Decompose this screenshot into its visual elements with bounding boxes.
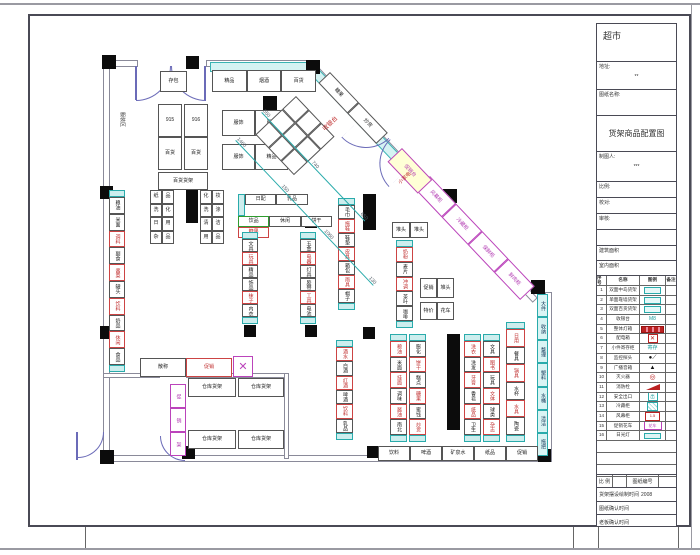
shelf-cell: 饰品 <box>242 278 258 291</box>
shelf-end-cap <box>242 232 258 239</box>
shelf-run: 精品烟酒百货 <box>212 70 316 92</box>
shelf-cell: 咖啡 <box>396 306 413 321</box>
scale-cell-label: 比 例 <box>597 475 613 487</box>
dimension-value: 740 <box>310 160 320 170</box>
legend-glyph <box>646 384 660 390</box>
column <box>102 55 116 69</box>
shelf-cell: 调味 <box>390 388 407 404</box>
shelf-cell: 915 <box>158 104 182 137</box>
shelf-cell: 糖果 <box>409 388 426 404</box>
boss-time-label: 老板确认时间 <box>599 519 629 526</box>
shelf-end-cap <box>336 340 353 347</box>
legend-glyph <box>644 287 661 294</box>
shelf-cell: 仓库货架 <box>188 430 236 449</box>
shelf-cell: 品 <box>162 190 174 204</box>
shelf-cell: 奶品 <box>109 315 125 332</box>
shelf-run: 膨化饼干糕点糖果蜜饯炒货 <box>409 334 426 442</box>
shelf-cell: 杂 <box>150 231 162 245</box>
shelf-cell: 酱菜 <box>109 264 125 281</box>
shelf-run: 文具玩具精品饰品袜子内衣 <box>242 232 258 324</box>
shelf-cell: 销 <box>170 408 186 432</box>
shelf-end-cap <box>338 303 355 310</box>
shelf-cell: 洁 <box>212 217 224 231</box>
wall <box>284 373 289 459</box>
shelf-cell: 涤 <box>212 204 224 218</box>
legend-glyph <box>641 326 664 333</box>
legend-glyph: 花车 <box>644 422 662 431</box>
shelf-cell: 杂志 <box>483 419 500 435</box>
shelf-cell: 大件 <box>537 294 548 317</box>
shelf-end-cap <box>109 190 125 197</box>
shelf-cell: 仓库货架 <box>238 430 284 449</box>
shelf-cell: 粮油 <box>390 341 407 357</box>
shelf-cell: 用 <box>200 231 212 245</box>
legend-row: 7小件寄存柜寄存 <box>597 344 676 354</box>
shelf-cell: 南北 <box>390 419 407 435</box>
legend-row: 9广播音箱▲ <box>597 364 676 374</box>
column <box>447 334 460 430</box>
shelf-cell: 洗 <box>200 204 212 218</box>
drafter-value: *** <box>599 164 674 170</box>
legend-empty-row <box>597 453 676 465</box>
shelf-cell: 烟酒 <box>247 70 282 92</box>
shelf-cell: 炒货 <box>409 419 426 435</box>
shelf-cell: 酒水 <box>336 347 353 361</box>
door-leaf <box>135 66 137 100</box>
shelf-run: 五金电器灯具胶带工具电池 <box>300 232 316 324</box>
column <box>186 56 199 69</box>
shelf-run: 散称促销 <box>140 358 232 377</box>
title-block: 超市 地址: ** 图纸名称: 货架商品配置图 制图人: *** 比例: 校对:… <box>596 23 677 527</box>
shelf-run: 促销架 <box>170 384 186 456</box>
shelf-cell: 胶带 <box>300 278 316 291</box>
shelf-run: 仓库货架 <box>188 378 236 397</box>
shelf-cell: 袜子 <box>242 291 258 304</box>
shelf-cell: 电器 <box>300 252 316 265</box>
shelf-cell: 香皂 <box>464 388 481 404</box>
shelf-end-cap <box>109 365 125 372</box>
drawing-name-label: 图纸名称: <box>597 90 676 116</box>
shelf-cell: 花车 <box>437 302 454 320</box>
shelf-run: 促销堆头 <box>420 278 454 298</box>
strip-divider <box>678 527 679 548</box>
shelf-cell: 糕点 <box>409 372 426 388</box>
shelf-cell: 帽子 <box>338 289 355 303</box>
address-label: 地址: <box>599 64 610 70</box>
shelf-end-cap <box>300 317 316 324</box>
blank-row <box>597 230 676 246</box>
shelf-end-cap <box>506 322 525 329</box>
shelf-run: 仓库货架 <box>238 378 284 397</box>
drawing-title: 货架商品配置图 <box>597 116 676 152</box>
shelf-cell: 水杯 <box>506 382 525 400</box>
shelf-cell: 矿泉水 <box>442 446 474 461</box>
area-label: 收银台 <box>322 116 339 133</box>
shelf-cell: 堆头 <box>392 222 410 238</box>
interior-area-label: 室内面积 <box>597 261 676 276</box>
shelf-end-cap <box>483 435 500 442</box>
shelf-cell: 拖鞋 <box>338 219 355 233</box>
shelf-run: 915百货 <box>158 104 182 170</box>
shelf-cell: 清 <box>200 217 212 231</box>
shelf-end-cap <box>390 435 407 442</box>
draw-time-label: 货架摆设绘制时间 <box>599 491 639 498</box>
shelf-cell: 卫生 <box>464 419 481 435</box>
shelf-cell: 洗 <box>150 204 162 218</box>
shelf-cell: 散称 <box>140 358 186 377</box>
shelf-cell: 牙膏 <box>464 372 481 388</box>
floor-plan-canvas: 精品烟酒百货存包915百货916百货百货货架服饰服饰服饰精品粮油米面调料副食酱菜… <box>0 0 596 555</box>
shelf-cell: 啤酒 <box>336 390 353 404</box>
review-label: 审核: <box>597 214 676 230</box>
legend-row: 4收银台M8 <box>597 315 676 325</box>
legend-glyph: M8 <box>649 317 656 322</box>
shelf-end-cap <box>300 232 316 239</box>
shelf-cell: 酱油 <box>390 404 407 420</box>
address-value: ** <box>599 74 674 80</box>
shelf-cell: 灯具 <box>300 265 316 278</box>
shelf-cell: 挂面 <box>390 372 407 388</box>
shelf-cell: 百货 <box>281 70 316 92</box>
check-label: 校对: <box>597 198 676 214</box>
shelf-cell: 纸 <box>150 190 162 204</box>
shelf-cell: 粮油 <box>109 197 125 214</box>
legend-row: 3双面百货货架 <box>597 305 676 315</box>
shelf-cell: 饮品 <box>238 216 269 227</box>
legend-row: 1双面中岛货架 <box>597 286 676 296</box>
shelf-cell: 仓库货架 <box>188 378 236 397</box>
shelf-cell: 存包 <box>160 71 187 92</box>
shelf-cell: 纸品 <box>474 446 506 461</box>
shelf-cell: 水具 <box>506 400 525 418</box>
shelf-cell: 水桶 <box>537 387 548 410</box>
legend-glyph: ●⟋ <box>649 355 657 361</box>
shelf-end-cap <box>242 317 258 324</box>
scale-cell-value <box>613 475 627 487</box>
shelf-run: 粮油米面调料副食酱菜罐头饮料奶品休闲食品 <box>109 190 125 372</box>
shelf-end-cap <box>464 435 481 442</box>
legend-row: 11消防栓 <box>597 383 676 393</box>
boss-time-row: 老板确认时间 <box>597 515 676 529</box>
legend-glyph <box>644 306 661 313</box>
shelf-end-cap <box>464 334 481 341</box>
column <box>244 325 256 337</box>
shelf-cell: 玩具 <box>483 372 500 388</box>
shelf-cell: 堆头 <box>410 222 428 238</box>
shelf-cell: 特价 <box>420 302 437 320</box>
legend-glyph <box>644 297 661 304</box>
shelf-cell: 电池 <box>300 304 316 317</box>
shelf-end-cap <box>336 433 353 440</box>
shelf-cell: 内衣 <box>242 304 258 317</box>
shelf-run: 大件收纳整理塑料水桶清洁拖把 <box>537 294 548 456</box>
sheet-right-edge <box>691 3 692 549</box>
shelf-cell: 饼干 <box>409 357 426 373</box>
shelf-run: 存包 <box>160 71 187 92</box>
column <box>186 190 198 223</box>
shelf-run: 特价花车 <box>420 302 454 320</box>
shelf-end-cap <box>506 435 525 442</box>
legend-row: 14风幕柜1.5 <box>597 412 676 422</box>
scale-number-row: 比 例 图纸编号 <box>597 475 676 488</box>
shelf-cell: 冲调 <box>396 277 413 292</box>
shelf-cell: 鞋垫 <box>338 233 355 247</box>
drafter-row: 制图人: *** <box>597 152 676 182</box>
drafter-label: 制图人: <box>599 154 615 160</box>
shelf-cell: 促 <box>170 384 186 408</box>
shelf-cell: 白酒 <box>336 361 353 375</box>
shelf-cell: 工具 <box>300 291 316 304</box>
dimension-value: 1060 <box>323 229 335 241</box>
draw-time-value: 2008 <box>641 492 652 498</box>
shelf-cell: 妆 <box>212 190 224 204</box>
shelf-end-cap <box>409 334 426 341</box>
door-leaf <box>204 66 206 100</box>
shelf-cell: 日 <box>150 217 162 231</box>
shelf-cell: 乳品 <box>336 419 353 433</box>
shelf-cell: 饮料 <box>378 446 410 461</box>
shelf-cell: 日配 <box>245 194 276 205</box>
shelf-cell: 餐具 <box>506 347 525 365</box>
address-row: 地址: ** <box>597 62 676 90</box>
building-area-label: 建筑面积 <box>597 246 676 261</box>
shelf-cell: 休闲 <box>269 216 300 227</box>
legend-row: 6配电箱✕ <box>597 334 676 344</box>
legend-empty-row <box>597 441 676 453</box>
shelf-cell: 收纳 <box>537 317 548 340</box>
sheet-no-label: 图纸编号 <box>627 475 659 487</box>
shelf-end-cap <box>238 194 245 216</box>
shelf-cell: 整理 <box>537 340 548 363</box>
shelf-run: 奶粉麦片冲调茶叶咖啡 <box>396 240 413 328</box>
shelf-cell: 品 <box>212 231 224 245</box>
drawing-sheet: 精品烟酒百货存包915百货916百货百货货架服饰服饰服饰精品粮油米面调料副食酱菜… <box>0 0 700 555</box>
column <box>305 325 317 337</box>
shelf-cell: 饮料 <box>109 298 125 315</box>
shelf-cell: 仓库货架 <box>238 378 284 397</box>
shelf-cell: 饮料 <box>336 404 353 418</box>
legend-row: 15促销花车花车 <box>597 422 676 432</box>
legend-row: 12安全出口出 <box>597 393 676 403</box>
shelf-run: 日用餐具锅具水杯水具陶瓷 <box>506 322 525 442</box>
legend-glyph: 寄存 <box>647 346 657 351</box>
shelf-run: 洗衣洗发牙膏香皂纸品卫生 <box>464 334 481 442</box>
shelf-cell: 食品 <box>109 348 125 365</box>
legend-row: 16日光灯 <box>597 431 676 441</box>
shelf-cell: 916 <box>184 104 208 137</box>
strip-divider <box>598 527 599 548</box>
shelf-cell: 拖把 <box>537 433 548 456</box>
shelf-cell: 调料 <box>109 231 125 248</box>
shelf-cell: 洗发 <box>464 357 481 373</box>
shelf-grid: 纸品洗化日用杂品 <box>150 190 174 244</box>
confirm-time-label: 图纸确认时间 <box>599 505 629 512</box>
shelf-cell: 文具 <box>242 239 258 252</box>
shelf-cell: 休闲 <box>109 331 125 348</box>
shelf-cell: 麦片 <box>396 262 413 277</box>
shelf-end-cap <box>483 334 500 341</box>
shelf-run: 酒水白酒红酒啤酒饮料乳品 <box>336 340 353 440</box>
shelf-cell: 罐头 <box>109 281 125 298</box>
draw-time-row: 货架摆设绘制时间 2008 <box>597 488 676 502</box>
column <box>363 194 376 230</box>
shelf-cell: 红酒 <box>336 376 353 390</box>
shelf-cell: 雨具 <box>338 275 355 289</box>
legend-row: 5整体灯箱 <box>597 325 676 335</box>
shelf-cell: 架 <box>170 432 186 456</box>
legend-row: 8监控探头●⟋ <box>597 354 676 364</box>
legend-glyph <box>644 433 661 439</box>
shelf-cell: 球类 <box>483 404 500 420</box>
area-label: 服装区 <box>119 112 124 127</box>
shelf-cell: 奶粉 <box>396 247 413 262</box>
shelf-cell: 服饰 <box>222 110 255 136</box>
shelf-end-cap <box>396 321 413 328</box>
column <box>100 450 114 464</box>
shelf-cell: 膨化 <box>409 341 426 357</box>
legend-row: 10灭火器◎ <box>597 373 676 383</box>
shelf-run: 文具图书玩具文体球类杂志 <box>483 334 500 442</box>
shelf-run: 堆头堆头 <box>392 222 428 238</box>
shelf-end-cap <box>396 240 413 247</box>
shelf-cell: 五金 <box>300 239 316 252</box>
shelf-cell: 米面 <box>109 214 125 231</box>
shelf-grid: 化妆洗涤清洁用品 <box>200 190 224 244</box>
shelf-cell: 文体 <box>483 388 500 404</box>
shelf-run: 饮料啤酒矿泉水纸品促销 <box>378 446 538 461</box>
shelf-end-cap <box>409 435 426 442</box>
shelf-cell: 图书 <box>483 357 500 373</box>
shelf-cell: 蜜饯 <box>409 404 426 420</box>
legend-glyph: 出 <box>648 393 658 402</box>
shelf-cell: 锅具 <box>506 364 525 382</box>
legend-glyph: ✕ <box>648 334 658 343</box>
shelf-run: 仓库货架 <box>238 430 284 449</box>
shelf-cell: 清洁 <box>537 410 548 433</box>
shelf-cell: 副食 <box>109 247 125 264</box>
sheet-no-value <box>659 475 676 487</box>
legend-glyph: ▲ <box>650 365 656 371</box>
shelf-cell: 品 <box>162 231 174 245</box>
shelf-cell: 啤酒 <box>410 446 442 461</box>
confirm-time-row: 图纸确认时间 <box>597 502 676 515</box>
shelf-cell: 精品 <box>212 70 247 92</box>
legend-glyph: 1.5 <box>645 412 660 421</box>
shelf-cell: 百货 <box>158 137 182 170</box>
shelf-cell: 百货 <box>184 137 208 170</box>
shelf-cell: 玩具 <box>242 252 258 265</box>
legend-table: 序号名称图例备注1双面中岛货架2单面靠墙货架3双面百货货架4收银台M85整体灯箱… <box>597 276 676 475</box>
shelf-cell: 精品 <box>242 265 258 278</box>
shelf-cell: 纸品 <box>464 404 481 420</box>
shelf-run: 916百货 <box>184 104 208 170</box>
shelf-run: 仓库货架 <box>188 430 236 449</box>
legend-glyph <box>647 402 658 411</box>
shelf-cell: 堆头 <box>437 278 454 298</box>
promo-cart-marker: ✕ <box>233 356 253 377</box>
column <box>363 327 375 339</box>
legend-header: 序号名称图例备注 <box>597 276 676 286</box>
shelf-cell: 洗衣 <box>464 341 481 357</box>
shelf-cell: 陶瓷 <box>506 417 525 435</box>
shelf-run: 粮油米面挂面调味酱油南北 <box>390 334 407 442</box>
door-leaf <box>76 432 78 460</box>
shelf-cell: 促销 <box>420 278 437 298</box>
shelf-cell: 促销 <box>186 358 232 377</box>
shelf-cell: 日用 <box>506 329 525 347</box>
shelf-end-cap <box>390 334 407 341</box>
shelf-cell: 化 <box>162 204 174 218</box>
shelf-cell: 化 <box>200 190 212 204</box>
legend-row: 13冷藏柜 <box>597 402 676 412</box>
legend-glyph: ◎ <box>649 374 655 381</box>
dimension-value: 130 <box>367 276 377 286</box>
shelf-run: 百货货架 <box>158 172 208 190</box>
shelf-cell: 茶叶 <box>396 291 413 306</box>
shelf-cell: 米面 <box>390 357 407 373</box>
shelf-cell: 用 <box>162 217 174 231</box>
scale-label: 比例: <box>597 182 676 198</box>
legend-row: 2单面靠墙货架 <box>597 296 676 306</box>
shelf-cell: 促销 <box>506 446 538 461</box>
shelf-cell: 塑料 <box>537 363 548 386</box>
shelf-cell: 百货货架 <box>158 172 208 190</box>
dimension-value: 150 <box>280 184 290 194</box>
shelf-cell: 文具 <box>483 341 500 357</box>
store-name: 超市 <box>597 24 676 62</box>
